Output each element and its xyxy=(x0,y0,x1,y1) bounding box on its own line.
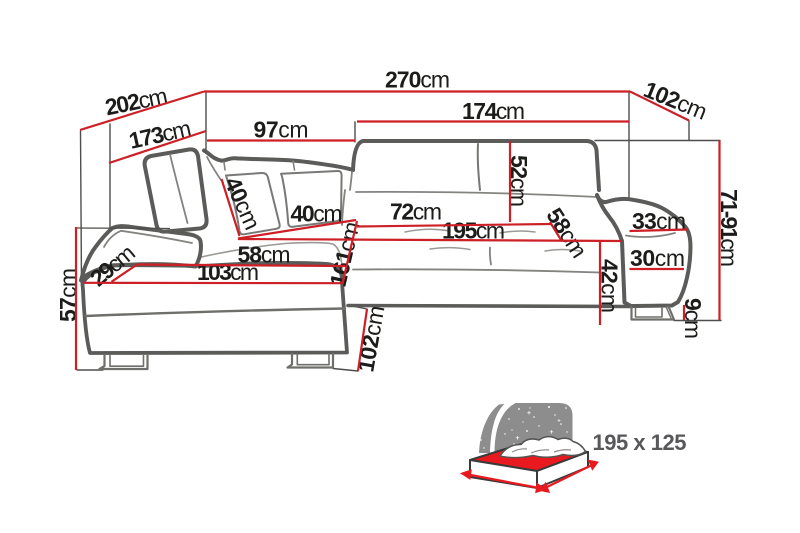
svg-text:97cm: 97cm xyxy=(254,117,309,143)
svg-text:174cm: 174cm xyxy=(462,98,525,124)
svg-text:72cm: 72cm xyxy=(390,199,442,225)
svg-text:195 x 125: 195 x 125 xyxy=(593,430,687,455)
svg-text:103cm: 103cm xyxy=(197,259,259,285)
svg-text:30cm: 30cm xyxy=(630,245,685,271)
svg-text:270cm: 270cm xyxy=(385,67,450,93)
